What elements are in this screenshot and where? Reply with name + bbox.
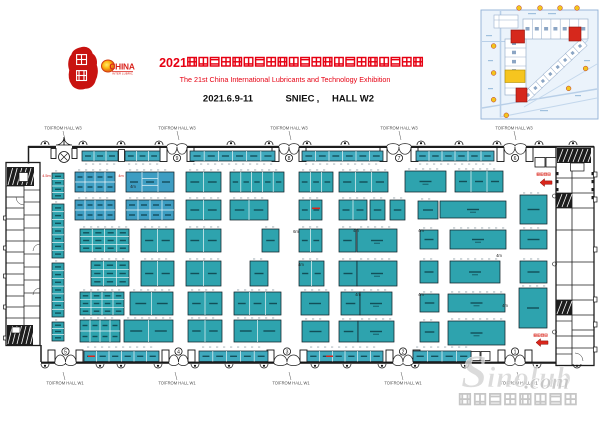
svg-text:TO/FROM HALL W3: TO/FROM HALL W3 bbox=[495, 126, 533, 131]
svg-text:TO/FROM HALL W3: TO/FROM HALL W3 bbox=[380, 126, 418, 131]
svg-text:4m: 4m bbox=[130, 184, 136, 189]
svg-text:CHINA: CHINA bbox=[109, 61, 134, 71]
svg-text:TO/FROM HALL W1: TO/FROM HALL W1 bbox=[46, 381, 84, 386]
svg-text:2021.6.9-11: 2021.6.9-11 bbox=[203, 94, 254, 105]
svg-text:TO/FROM HALL W3: TO/FROM HALL W3 bbox=[158, 126, 196, 131]
svg-text:4.5m: 4.5m bbox=[42, 174, 50, 178]
svg-text:1: 1 bbox=[514, 349, 517, 355]
svg-text:4m: 4m bbox=[502, 303, 508, 308]
svg-text:The 21st China International L: The 21st China International Lubricants … bbox=[180, 75, 391, 84]
svg-text:4m: 4m bbox=[355, 292, 361, 297]
svg-text:8: 8 bbox=[288, 156, 291, 162]
svg-text:4: 4 bbox=[177, 349, 180, 355]
svg-text:TO/FROM HALL W1: TO/FROM HALL W1 bbox=[384, 381, 422, 386]
svg-text:SNIEC: SNIEC bbox=[285, 94, 314, 105]
svg-text:2021: 2021 bbox=[159, 56, 187, 70]
svg-text:HALL W2: HALL W2 bbox=[332, 94, 374, 105]
svg-text:4m: 4m bbox=[298, 262, 304, 267]
svg-text:5: 5 bbox=[64, 349, 67, 355]
svg-text:TO/FROM HALL W1: TO/FROM HALL W1 bbox=[272, 381, 310, 386]
svg-text:4m: 4m bbox=[118, 174, 123, 178]
svg-text:INTER LUBRIC: INTER LUBRIC bbox=[112, 72, 134, 76]
svg-text:.com: .com bbox=[524, 369, 569, 394]
svg-text:6m: 6m bbox=[293, 229, 299, 234]
svg-text:7: 7 bbox=[398, 156, 401, 162]
svg-text:4m: 4m bbox=[496, 253, 502, 258]
svg-text:4m: 4m bbox=[353, 228, 359, 233]
svg-text:TO/FROM HALL W3: TO/FROM HALL W3 bbox=[270, 126, 308, 131]
svg-text:4m: 4m bbox=[418, 292, 424, 297]
svg-text:TO/FROM HALL W3: TO/FROM HALL W3 bbox=[44, 126, 82, 131]
svg-text:6: 6 bbox=[514, 156, 517, 162]
svg-text:4m: 4m bbox=[418, 228, 424, 233]
svg-text:3: 3 bbox=[286, 349, 289, 355]
svg-text:TO/FROM HALL W1: TO/FROM HALL W1 bbox=[158, 381, 196, 386]
svg-text:2: 2 bbox=[402, 349, 405, 355]
svg-text:9: 9 bbox=[176, 156, 179, 162]
svg-text:,: , bbox=[317, 94, 320, 105]
